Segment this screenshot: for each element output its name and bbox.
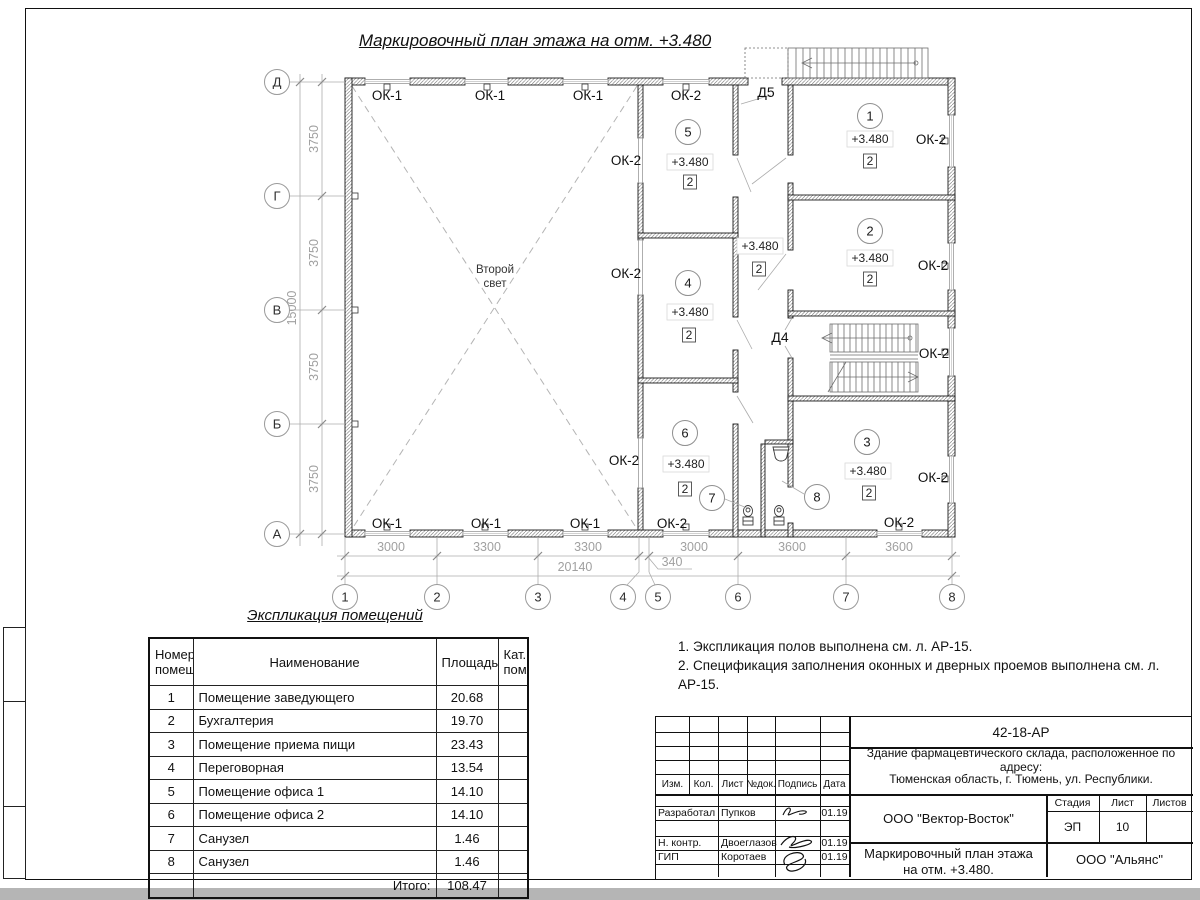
date-ncontr: 01.19 bbox=[820, 836, 849, 850]
room-area: 1.46 bbox=[436, 850, 498, 874]
room-cat bbox=[498, 803, 528, 827]
room-name: Помещение заведующего bbox=[193, 686, 436, 710]
room-name: Бухгалтерия bbox=[193, 709, 436, 733]
schedule-header-area: Площадь bbox=[436, 638, 498, 686]
stage-value: ЭП bbox=[1046, 811, 1099, 842]
table-row: 1Помещение заведующего20.68 bbox=[149, 686, 528, 710]
room-cat bbox=[498, 780, 528, 804]
room-area: 13.54 bbox=[436, 756, 498, 780]
role-developer: Разработал bbox=[658, 806, 718, 820]
note-1: 1. Экспликация полов выполнена см. л. АР… bbox=[678, 637, 1198, 656]
col-izm: Изм. bbox=[656, 775, 689, 794]
table-row: 7Санузел1.46 bbox=[149, 827, 528, 851]
role-gip: ГИП bbox=[658, 850, 718, 864]
room-area: 14.10 bbox=[436, 803, 498, 827]
room-cat bbox=[498, 686, 528, 710]
left-margin-box-1 bbox=[3, 627, 26, 704]
schedule-header-name: Наименование bbox=[193, 638, 436, 686]
date-gip: 01.19 bbox=[820, 850, 849, 864]
notes-block: 1. Экспликация полов выполнена см. л. АР… bbox=[678, 637, 1198, 694]
schedule-title: Экспликация помещений bbox=[235, 607, 435, 624]
signatures bbox=[775, 797, 820, 875]
left-margin-box-2 bbox=[3, 701, 26, 809]
room-num: 5 bbox=[149, 780, 193, 804]
schedule-header-category: Кат. пом. bbox=[498, 638, 528, 686]
room-num: 8 bbox=[149, 850, 193, 874]
col-data: Дата bbox=[820, 775, 849, 794]
total-label: Итого: bbox=[193, 874, 436, 898]
title-block: 42-18-АР Здание фармацевтического склада… bbox=[655, 716, 1192, 880]
table-row: 5Помещение офиса 114.10 bbox=[149, 780, 528, 804]
note-2: 2. Спецификация заполнения оконных и две… bbox=[678, 656, 1198, 694]
col-ndok: №док. bbox=[747, 775, 775, 794]
sheet-number: 10 bbox=[1099, 811, 1146, 842]
drawing-sheet: 3000 3300 3300 3000 3600 3600 340 20140 … bbox=[0, 0, 1200, 900]
sheets-label: Листов bbox=[1146, 794, 1193, 811]
table-row: 8Санузел1.46 bbox=[149, 850, 528, 874]
room-cat bbox=[498, 733, 528, 757]
room-area: 23.43 bbox=[436, 733, 498, 757]
room-area: 20.68 bbox=[436, 686, 498, 710]
room-num: 4 bbox=[149, 756, 193, 780]
room-area: 14.10 bbox=[436, 780, 498, 804]
sheet-label: Лист bbox=[1099, 794, 1146, 811]
drawing-title: Маркировочный план этажа на отм. +3.480 bbox=[335, 31, 735, 51]
drawing-name-line1: Маркировочный план этажа bbox=[851, 845, 1046, 861]
room-num: 7 bbox=[149, 827, 193, 851]
room-name: Помещение офиса 2 bbox=[193, 803, 436, 827]
room-cat bbox=[498, 850, 528, 874]
stage-label: Стадия bbox=[1046, 794, 1099, 811]
col-kol: Кол. bbox=[689, 775, 718, 794]
room-num: 6 bbox=[149, 803, 193, 827]
name-gip: Коротаев bbox=[721, 850, 775, 864]
table-row: 4Переговорная13.54 bbox=[149, 756, 528, 780]
room-name: Помещение офиса 1 bbox=[193, 780, 436, 804]
company-name: ООО "Вектор-Восток" bbox=[851, 794, 1046, 842]
date-developer: 01.19 bbox=[820, 806, 849, 820]
room-name: Переговорная bbox=[193, 756, 436, 780]
room-cat bbox=[498, 827, 528, 851]
room-area: 19.70 bbox=[436, 709, 498, 733]
table-row: 6Помещение офиса 214.10 bbox=[149, 803, 528, 827]
table-row: 2Бухгалтерия19.70 bbox=[149, 709, 528, 733]
schedule-total-row: Итого:108.47 bbox=[149, 874, 528, 898]
room-name: Помещение приема пищи bbox=[193, 733, 436, 757]
object-line1: Здание фармацевтического склада, располо… bbox=[851, 750, 1191, 770]
col-list: Лист bbox=[718, 775, 747, 794]
name-ncontr: Двоеглазов bbox=[721, 836, 775, 850]
room-cat bbox=[498, 756, 528, 780]
object-line2: Тюменская область, г. Тюмень, ул. Респуб… bbox=[851, 769, 1191, 789]
room-cat bbox=[498, 709, 528, 733]
room-area: 1.46 bbox=[436, 827, 498, 851]
total-value: 108.47 bbox=[436, 874, 498, 898]
schedule-header-number: Номер помещ. bbox=[149, 638, 193, 686]
room-num: 3 bbox=[149, 733, 193, 757]
name-developer: Пупков bbox=[721, 806, 775, 820]
col-podpis: Подпись bbox=[775, 775, 820, 794]
drawing-name-line2: на отм. +3.480. bbox=[851, 861, 1046, 877]
schedule-header-row: Номер помещ. Наименование Площадь Кат. п… bbox=[149, 638, 528, 686]
room-name: Санузел bbox=[193, 850, 436, 874]
room-schedule-table: Номер помещ. Наименование Площадь Кат. п… bbox=[148, 637, 529, 899]
room-name: Санузел bbox=[193, 827, 436, 851]
room-num: 2 bbox=[149, 709, 193, 733]
doc-number: 42-18-АР bbox=[849, 717, 1193, 747]
org-name: ООО "Альянс" bbox=[1046, 842, 1193, 877]
left-margin-box-3 bbox=[3, 806, 26, 879]
table-row: 3Помещение приема пищи23.43 bbox=[149, 733, 528, 757]
room-num: 1 bbox=[149, 686, 193, 710]
role-ncontr: Н. контр. bbox=[658, 836, 718, 850]
